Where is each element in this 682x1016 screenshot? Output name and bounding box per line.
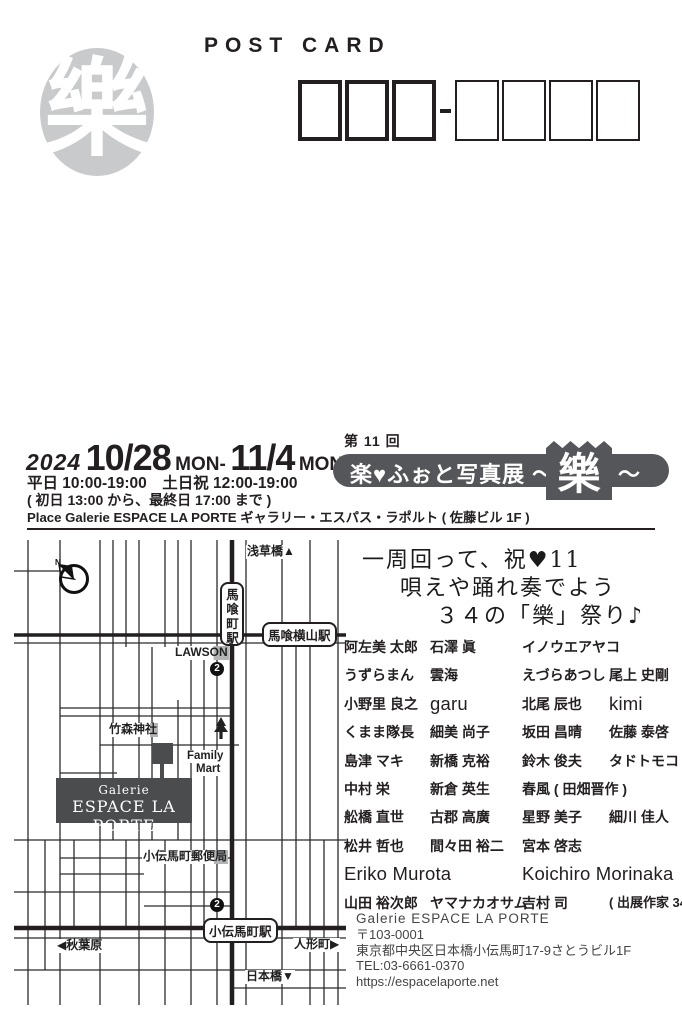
postal-code-dash	[440, 109, 451, 113]
artist-name: タドトモコ	[609, 747, 682, 775]
access-map: N 浅草橋▲ 馬喰町駅 馬喰横山駅 LAWSON 2 竹森神社 Family M…	[14, 540, 346, 1005]
poi-label-family-mart-line2: Mart	[195, 763, 221, 776]
artist-name: 阿左美 太郎	[344, 633, 430, 661]
postcard-heading: POST CARD	[204, 34, 391, 58]
artist-name: 小野里 良之	[344, 690, 430, 718]
divider-rule	[27, 528, 655, 530]
subway-exit-2-badge: 2	[210, 898, 224, 912]
artist-name: Eriko Murota	[344, 860, 522, 888]
artist-name: 雲海	[430, 661, 522, 689]
exhibition-title: 楽♥ふぉと写真展 ～	[350, 457, 555, 489]
artist-name: 新倉 英生	[430, 775, 522, 803]
subway-exit-2-badge: 2	[210, 662, 224, 676]
raku-stamp-logo: 樂	[40, 48, 154, 176]
artist-name: うずらまん	[344, 661, 430, 689]
postcard-page: 樂 POST CARD 2024 10/28 MON- 11/4 MON 平日 …	[0, 0, 682, 1016]
exhibition-title-tail: ～	[618, 457, 640, 489]
postal-code-box	[596, 80, 640, 141]
gallery-name-line1: Galerie	[56, 783, 192, 797]
artist-name: 尾上 史剛	[609, 661, 682, 689]
postal-code-box	[455, 80, 499, 141]
artist-name: 宮本 啓志	[522, 832, 682, 860]
event-place: Place Galerie ESPACE LA PORTE ギャラリー・エスパス…	[27, 507, 530, 526]
artist-name: 鈴木 俊夫	[522, 747, 609, 775]
artist-name: 細美 尚子	[430, 718, 522, 746]
area-label-nihonbashi: 日本橋▼	[245, 970, 295, 984]
compass-icon: N	[52, 556, 92, 596]
poi-label-takemori-shrine: 竹森神社	[108, 723, 158, 737]
artist-name: 北尾 辰也	[522, 690, 609, 718]
postal-code-box	[502, 80, 546, 141]
session-number: 第 11 回	[344, 431, 401, 451]
postal-code-box	[549, 80, 593, 141]
area-label-akihabara: ◀秋葉原	[56, 939, 103, 953]
poi-label-family-mart: Family	[186, 750, 224, 763]
headline-line3: ３４の「樂」祭り♪	[436, 598, 644, 630]
venue-website-url: https://espacelaporte.net	[356, 974, 631, 990]
artist-name: 中村 栄	[344, 775, 430, 803]
venue-info: Galerie ESPACE LA PORTE 〒103-0001 東京都中央区…	[356, 911, 631, 990]
artists-grid: 阿左美 太郎石澤 眞イノウエアヤコうずらまん雲海えづらあつし尾上 史剛小野里 良…	[344, 633, 682, 917]
artist-name: 間々田 裕二	[430, 832, 522, 860]
artist-name: Koichiro Morinaka	[522, 860, 682, 888]
station-label-bakuroyokoyama: 馬喰横山駅	[262, 622, 337, 647]
artist-name: 古郡 高廣	[430, 803, 522, 831]
artist-name: garu	[430, 690, 522, 718]
artist-name: くまま隊長	[344, 718, 430, 746]
gallery-name-box: Galerie ESPACE LA PORTE	[56, 778, 192, 823]
venue-address: 東京都中央区日本橋小伝馬町17-9さとうビル1F	[356, 943, 631, 959]
area-label-ningyocho: 人形町▶	[293, 938, 340, 952]
area-label-asakusabashi: 浅草橋▲	[246, 545, 296, 559]
postal-code-box	[298, 80, 342, 141]
postal-code-box	[392, 80, 436, 141]
artist-name: 星野 美子	[522, 803, 609, 831]
venue-postal-code: 〒103-0001	[356, 927, 631, 943]
postal-code-box	[345, 80, 389, 141]
gallery-name-line2: ESPACE LA PORTE	[56, 797, 192, 835]
artist-name: 春風 ( 田畑晋作 )	[522, 775, 682, 803]
venue-name: Galerie ESPACE LA PORTE	[356, 911, 631, 927]
artist-name: 坂田 昌晴	[522, 718, 609, 746]
station-label-bakurocho: 馬喰町駅	[220, 582, 244, 646]
raku-kanji-badge: 樂	[546, 441, 612, 500]
station-label-kodenmacho: 小伝馬町駅	[203, 918, 278, 943]
poi-label-lawson: LAWSON	[174, 646, 229, 660]
svg-text:N: N	[55, 558, 61, 567]
artist-name: えづらあつし	[522, 661, 609, 689]
venue-telephone: TEL:03-6661-0370	[356, 958, 631, 974]
artist-name: 松井 哲也	[344, 832, 430, 860]
artist-name: 島津 マキ	[344, 747, 430, 775]
postal-code-boxes	[298, 80, 640, 141]
gallery-location-marker	[152, 743, 173, 764]
poi-label-post-office: 小伝馬町郵便局	[142, 850, 228, 864]
artist-name: イノウエアヤコ	[522, 633, 682, 661]
tree-icon	[213, 717, 229, 739]
map-street-grid	[14, 540, 346, 1005]
artist-name: 舩橋 直世	[344, 803, 430, 831]
raku-kanji: 樂	[546, 451, 612, 499]
artist-name: 細川 佳人	[609, 803, 682, 831]
artist-name: kimi	[609, 690, 682, 718]
artist-name: 石澤 眞	[430, 633, 522, 661]
raku-stamp-character: 樂	[32, 44, 162, 176]
artist-name: 新橋 克裕	[430, 747, 522, 775]
artist-name: 佐藤 泰啓	[609, 718, 682, 746]
